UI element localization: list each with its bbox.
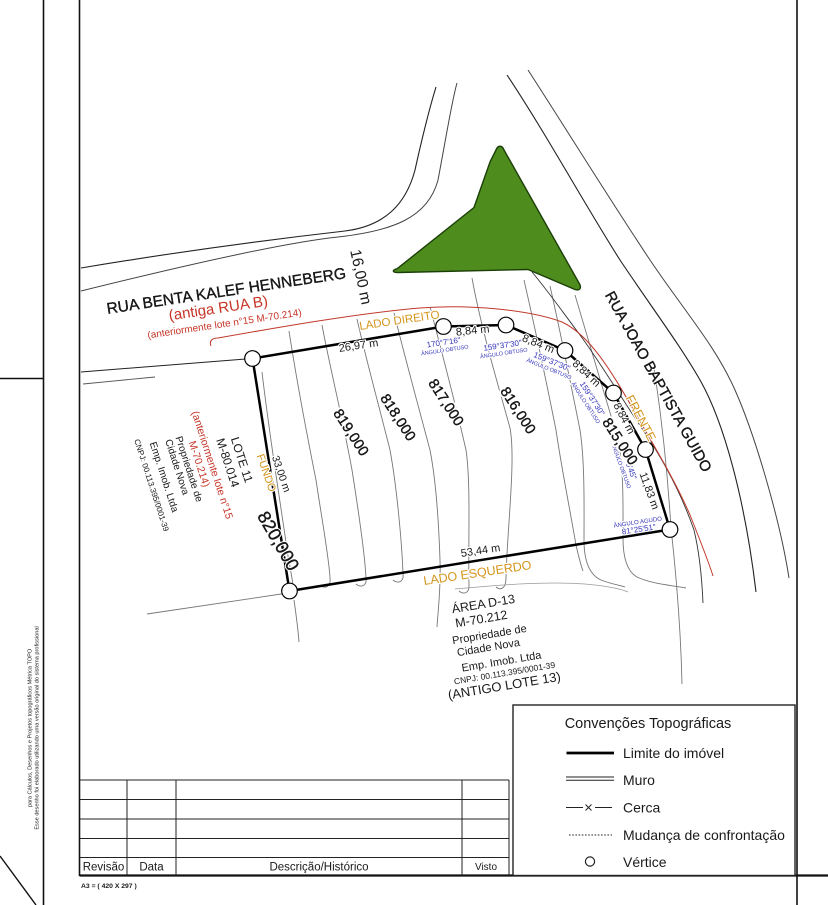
svg-text:Muro: Muro (623, 772, 655, 788)
svg-text:Mudança de confrontação: Mudança de confrontação (623, 827, 785, 843)
svg-text:Cerca: Cerca (623, 800, 661, 816)
svg-text:Visto: Visto (475, 862, 497, 873)
svg-text:Descrição/Histórico: Descrição/Histórico (269, 862, 368, 874)
svg-text:A3 = ( 420 X 297 ): A3 = ( 420 X 297 ) (81, 883, 137, 890)
svg-text:Data: Data (139, 862, 164, 874)
svg-text:Esse desenho foi elaborado uti: Esse desenho foi elaborado utilizando um… (35, 626, 41, 829)
svg-text:para Cálculos, Desenhos e Proj: para Cálculos, Desenhos e Projetos topog… (28, 648, 34, 807)
svg-text:Limite do imóvel: Limite do imóvel (623, 745, 724, 761)
svg-text:Vértice: Vértice (623, 854, 667, 870)
svg-text:Revisão: Revisão (83, 862, 125, 874)
svg-text:Convenções Topográficas: Convenções Topográficas (565, 716, 732, 732)
